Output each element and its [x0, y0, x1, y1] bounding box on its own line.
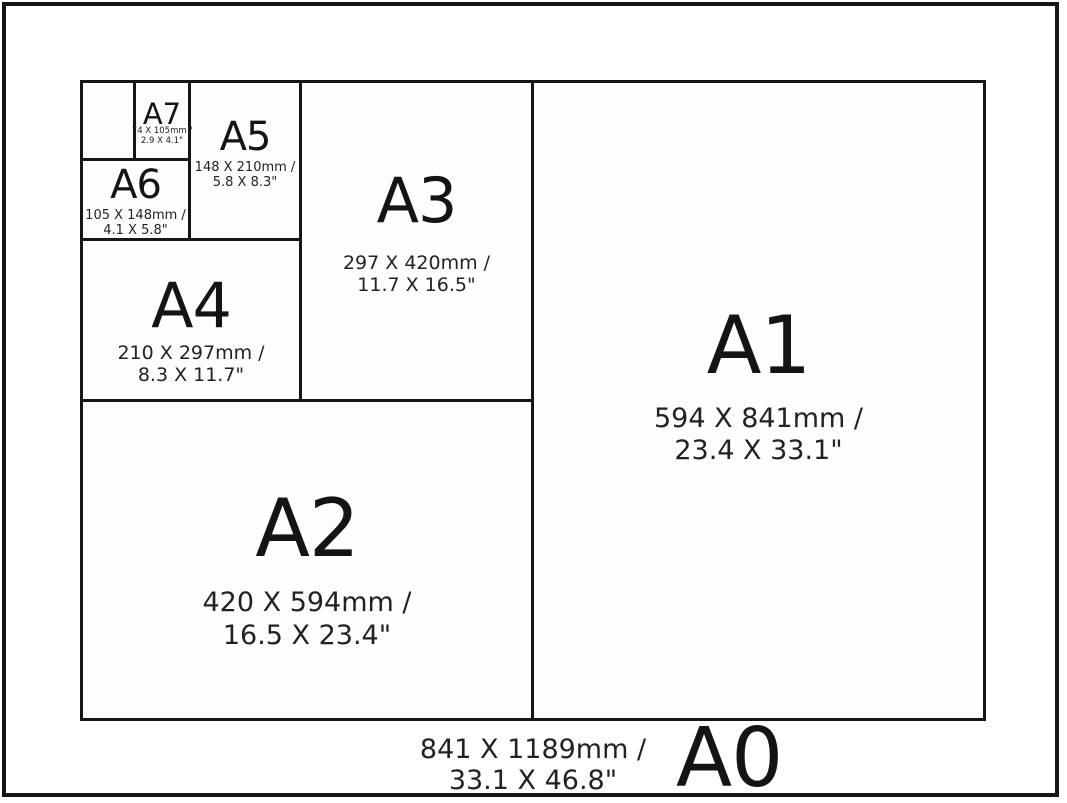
a8-box [80, 80, 136, 161]
a7-dimensions: 74 X 105mm / 2.9 X 4.1" [132, 126, 192, 146]
a4-dimensions: 210 X 297mm / 8.3 X 11.7" [117, 342, 264, 386]
a5-dimensions-mm: 148 X 210mm / [195, 160, 296, 175]
a0-dimensions: 841 X 1189mm / 33.1 X 46.8" [383, 734, 683, 796]
a7-dimensions-inches: 2.9 X 4.1" [132, 136, 192, 146]
a5-label: A5 [191, 117, 299, 157]
a3-dimensions-mm: 297 X 420mm / [343, 252, 490, 274]
a4-label: A4 [83, 275, 299, 337]
a6-box: A6 105 X 148mm / 4.1 X 5.8" [80, 158, 191, 241]
a0-label: A0 [676, 718, 782, 800]
a3-box: A3 297 X 420mm / 11.7 X 16.5" [299, 80, 534, 402]
a5-box: A5 148 X 210mm / 5.8 X 8.3" [188, 80, 302, 241]
a7-label: A7 [136, 100, 188, 129]
a4-dimensions-inches: 8.3 X 11.7" [117, 364, 264, 386]
a3-dimensions: 297 X 420mm / 11.7 X 16.5" [343, 252, 490, 296]
a2-dimensions-inches: 16.5 X 23.4" [202, 619, 411, 652]
a6-dimensions-mm: 105 X 148mm / [85, 208, 186, 223]
a4-box: A4 210 X 297mm / 8.3 X 11.7" [80, 238, 302, 402]
a7-dimensions-mm: 74 X 105mm / [132, 126, 192, 136]
paper-sizes-diagram: A6 105 X 148mm / 4.1 X 5.8" A5 148 X 210… [0, 0, 1067, 803]
a5-dimensions-inches: 5.8 X 8.3" [195, 175, 296, 190]
a2-dimensions-mm: 420 X 594mm / [202, 586, 411, 619]
a0-dimensions-inches: 33.1 X 46.8" [383, 765, 683, 796]
a7-box: A7 74 X 105mm / 2.9 X 4.1" [133, 80, 191, 161]
a5-dimensions: 148 X 210mm / 5.8 X 8.3" [195, 160, 296, 190]
a3-label: A3 [302, 170, 531, 232]
a1-dimensions-inches: 23.4 X 33.1" [654, 435, 863, 467]
a1-dimensions: 594 X 841mm / 23.4 X 33.1" [654, 403, 863, 467]
a2-box: A2 420 X 594mm / 16.5 X 23.4" [80, 399, 534, 721]
a1-box: A1 594 X 841mm / 23.4 X 33.1" [531, 80, 986, 721]
a2-label: A2 [83, 489, 531, 569]
a6-dimensions-inches: 4.1 X 5.8" [85, 223, 186, 238]
a3-dimensions-inches: 11.7 X 16.5" [343, 274, 490, 296]
a6-dimensions: 105 X 148mm / 4.1 X 5.8" [85, 208, 186, 238]
a2-dimensions: 420 X 594mm / 16.5 X 23.4" [202, 586, 411, 652]
a1-dimensions-mm: 594 X 841mm / [654, 403, 863, 435]
a0-dimensions-mm: 841 X 1189mm / [383, 734, 683, 765]
a4-dimensions-mm: 210 X 297mm / [117, 342, 264, 364]
a6-label: A6 [83, 165, 188, 205]
a1-label: A1 [534, 306, 983, 386]
